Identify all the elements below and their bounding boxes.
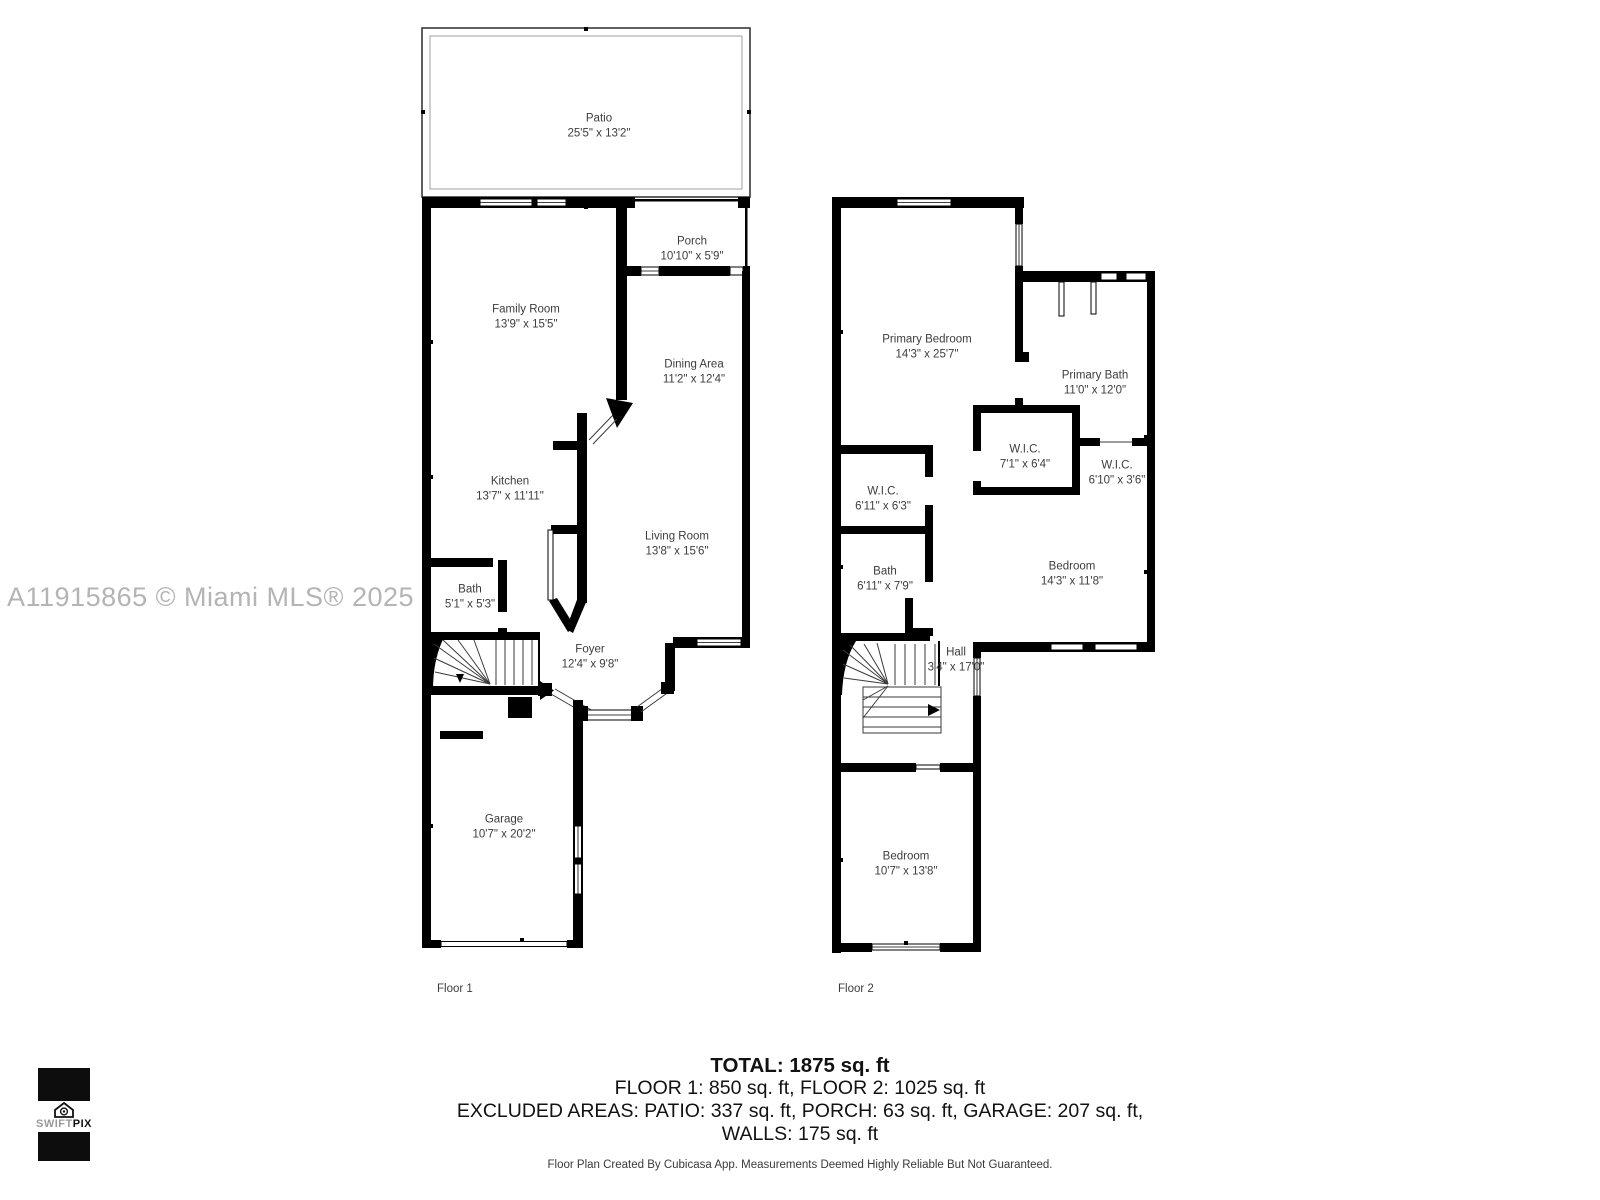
summary-floors: FLOOR 1: 850 sq. ft, FLOOR 2: 1025 sq. f… (0, 1077, 1600, 1100)
room-label-living-room: Living Room 13'8" x 15'6" (645, 529, 709, 558)
floorplan-page: A11915865 © Miami MLS® 2025 (0, 0, 1600, 1200)
room-label-patio: Patio 25'5" x 13'2" (567, 111, 630, 140)
logo-block-bottom (38, 1132, 90, 1161)
swiftpix-logo: SWIFTPIX (36, 1068, 92, 1161)
room-label-primary-bedroom: Primary Bedroom 14'3" x 25'7" (882, 332, 971, 361)
room-label-kitchen: Kitchen 13'7" x 11'11" (476, 474, 544, 503)
room-label-dining-area: Dining Area 11'2" x 12'4" (663, 357, 725, 386)
room-label-primary-bath: Primary Bath 11'0" x 12'0" (1062, 368, 1128, 397)
room-label-bedroom-right: Bedroom 14'3" x 11'8" (1041, 559, 1103, 588)
room-label-wic-center: W.I.C. 7'1" x 6'4" (1000, 442, 1050, 471)
mls-watermark: A11915865 © Miami MLS® 2025 (7, 582, 414, 613)
room-label-bedroom-bottom: Bedroom 10'7" x 13'8" (874, 849, 937, 878)
logo-block-top (38, 1068, 90, 1101)
summary-excluded: EXCLUDED AREAS: PATIO: 337 sq. ft, PORCH… (0, 1100, 1600, 1123)
room-label-porch: Porch 10'10" x 5'9" (660, 234, 723, 263)
floor1-plan-drawing (415, 20, 760, 960)
room-label-garage: Garage 10'7" x 20'2" (472, 812, 535, 841)
room-label-bath-floor2: Bath 6'11" x 7'9" (857, 564, 913, 593)
room-label-family-room: Family Room 13'9" x 15'5" (492, 302, 560, 331)
room-label-hall: Hall 3'4" x 17'0" (928, 645, 985, 674)
summary-total: TOTAL: 1875 sq. ft (0, 1054, 1600, 1077)
swiftpix-wordmark: SWIFTPIX (36, 1118, 92, 1130)
room-label-wic-left: W.I.C. 6'11" x 6'3" (855, 484, 911, 513)
disclaimer-text: Floor Plan Created By Cubicasa App. Meas… (0, 1159, 1600, 1171)
room-label-wic-right: W.I.C. 6'10" x 3'6" (1089, 458, 1146, 487)
floor2-caption: Floor 2 (838, 983, 874, 995)
room-label-bath-floor1: Bath 5'1" x 5'3" (445, 582, 495, 611)
area-summary: TOTAL: 1875 sq. ft FLOOR 1: 850 sq. ft, … (0, 1054, 1600, 1146)
summary-walls: WALLS: 175 sq. ft (0, 1123, 1600, 1146)
swiftpix-house-icon (53, 1102, 75, 1118)
room-label-foyer: Foyer 12'4" x 9'8" (562, 642, 619, 671)
floor1-caption: Floor 1 (437, 983, 473, 995)
